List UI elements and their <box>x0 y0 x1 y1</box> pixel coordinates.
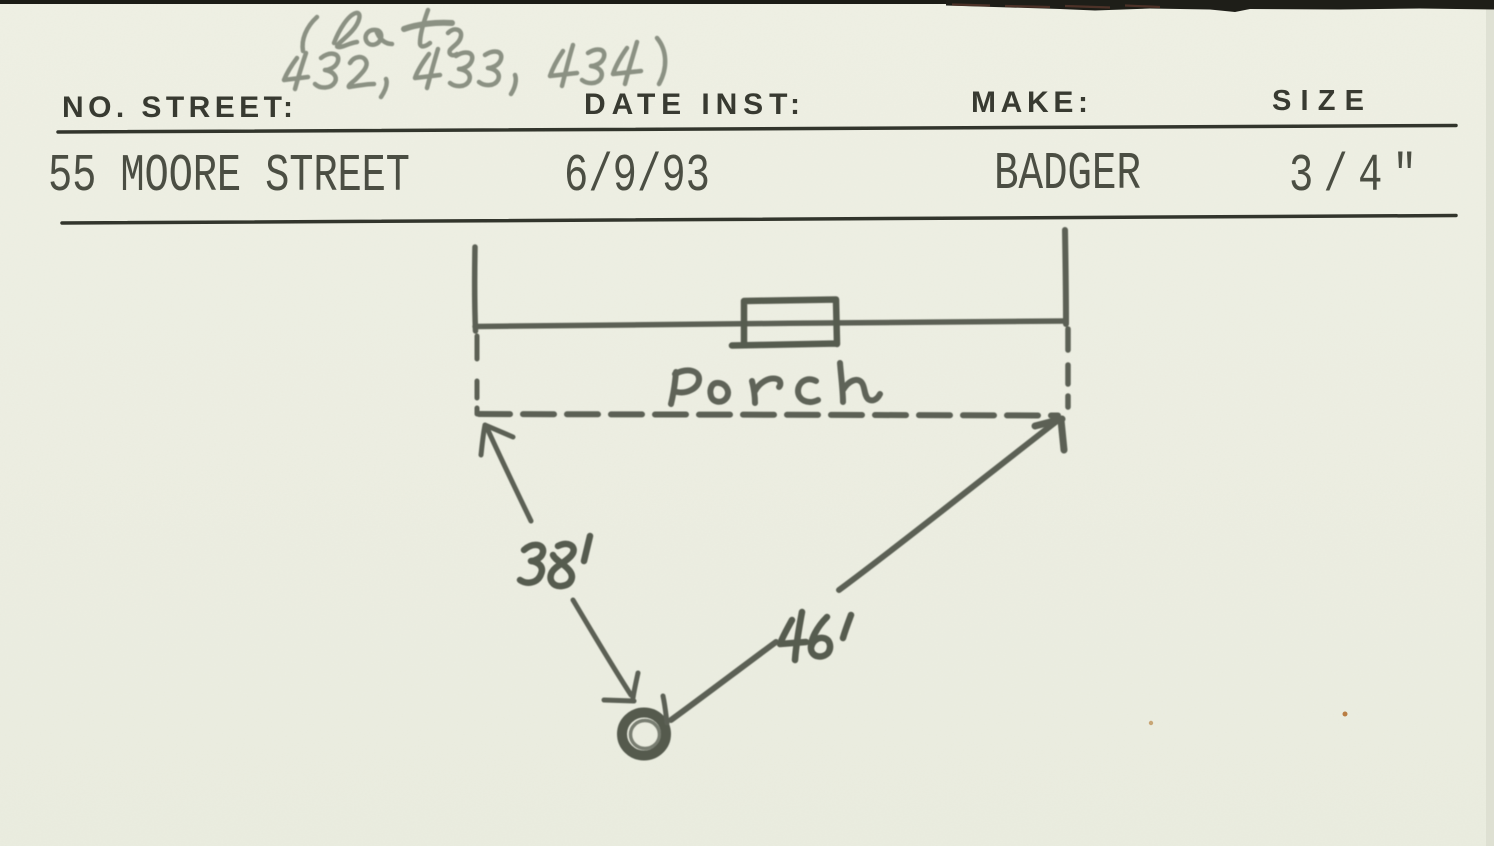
svg-text:MAKE:: MAKE: <box>971 86 1088 119</box>
svg-text:SIZE: SIZE <box>1272 85 1364 117</box>
svg-text:55 MOORE STREET: 55 MOORE STREET <box>48 147 410 206</box>
svg-text:6/9/93: 6/9/93 <box>564 147 710 206</box>
svg-text:BADGER: BADGER <box>994 144 1141 205</box>
svg-text:NO. STREET:: NO. STREET: <box>62 91 293 124</box>
